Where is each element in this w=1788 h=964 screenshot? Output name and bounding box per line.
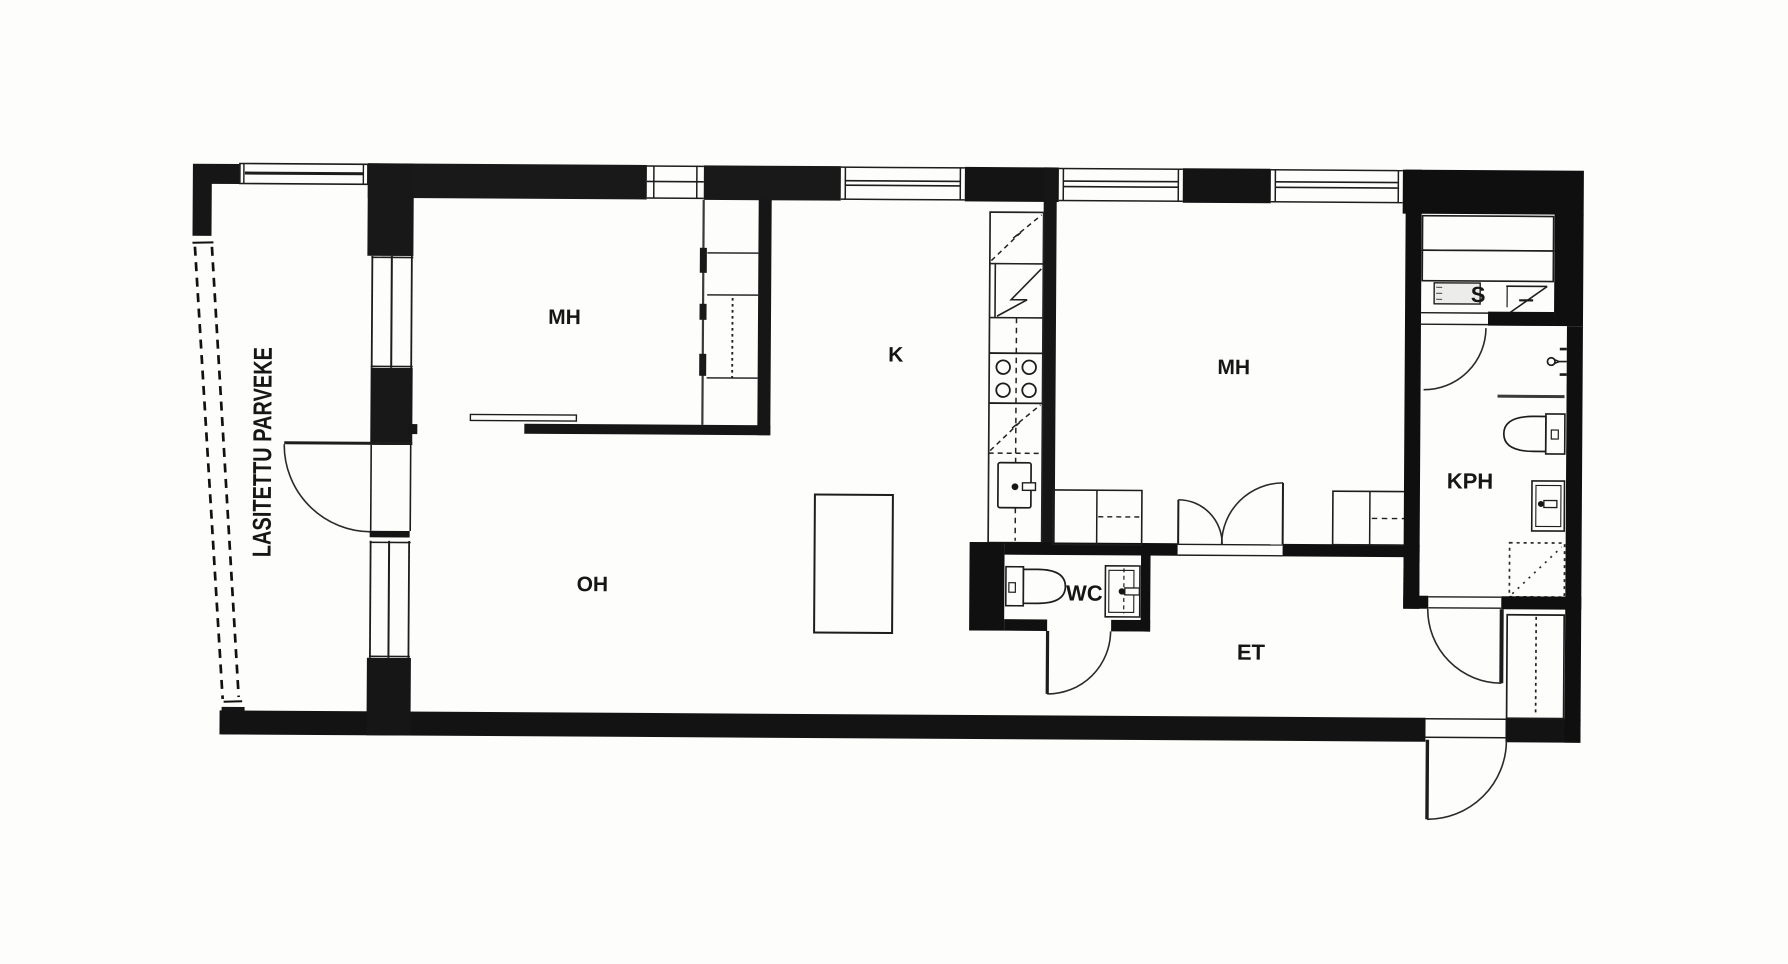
svg-text:K: K xyxy=(888,343,903,366)
svg-text:ET: ET xyxy=(1237,640,1266,665)
svg-text:OH: OH xyxy=(577,573,609,596)
svg-text:MH: MH xyxy=(548,306,581,329)
svg-text:LASITETTU PARVEKE: LASITETTU PARVEKE xyxy=(247,347,278,557)
svg-text:WC: WC xyxy=(1066,581,1103,606)
svg-text:KPH: KPH xyxy=(1447,468,1494,493)
svg-text:MH: MH xyxy=(1217,356,1250,379)
svg-text:S: S xyxy=(1471,282,1486,307)
